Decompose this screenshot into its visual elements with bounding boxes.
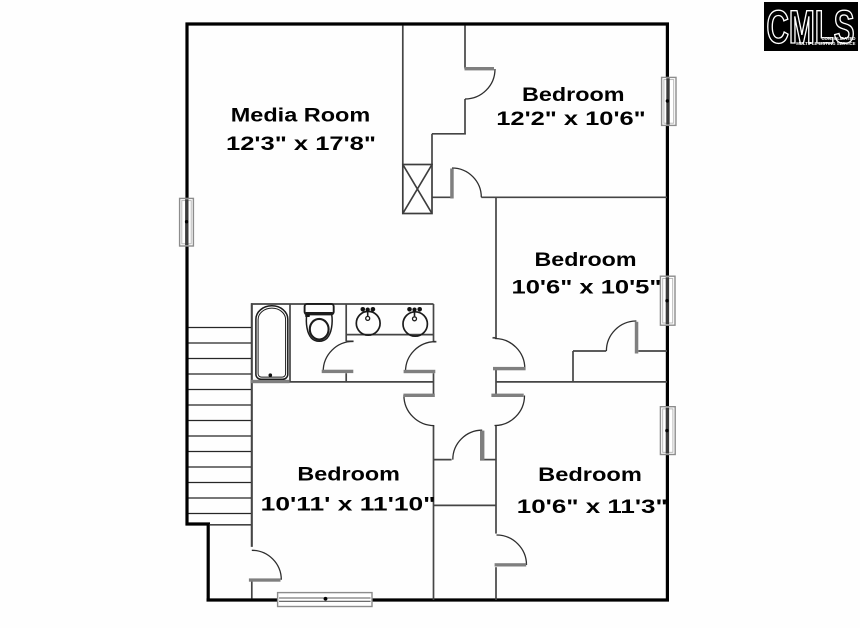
svg-text:12'2" x 10'6": 12'2" x 10'6" [496, 108, 646, 130]
svg-text:10'11' x 11'10": 10'11' x 11'10" [261, 494, 436, 516]
svg-text:Bedroom: Bedroom [522, 84, 625, 106]
svg-text:10'6" x 10'5": 10'6" x 10'5" [512, 277, 662, 299]
svg-text:12'3" x 17'8": 12'3" x 17'8" [226, 133, 376, 155]
svg-text:Media Room: Media Room [231, 104, 371, 126]
svg-text:Bedroom: Bedroom [297, 463, 400, 485]
svg-text:Bedroom: Bedroom [538, 464, 642, 486]
svg-text:MULTIPLE LISTING SERVICE: MULTIPLE LISTING SERVICE [796, 41, 855, 46]
svg-text:10'6" x 11'3": 10'6" x 11'3" [517, 496, 668, 518]
svg-text:Bedroom: Bedroom [535, 249, 637, 271]
